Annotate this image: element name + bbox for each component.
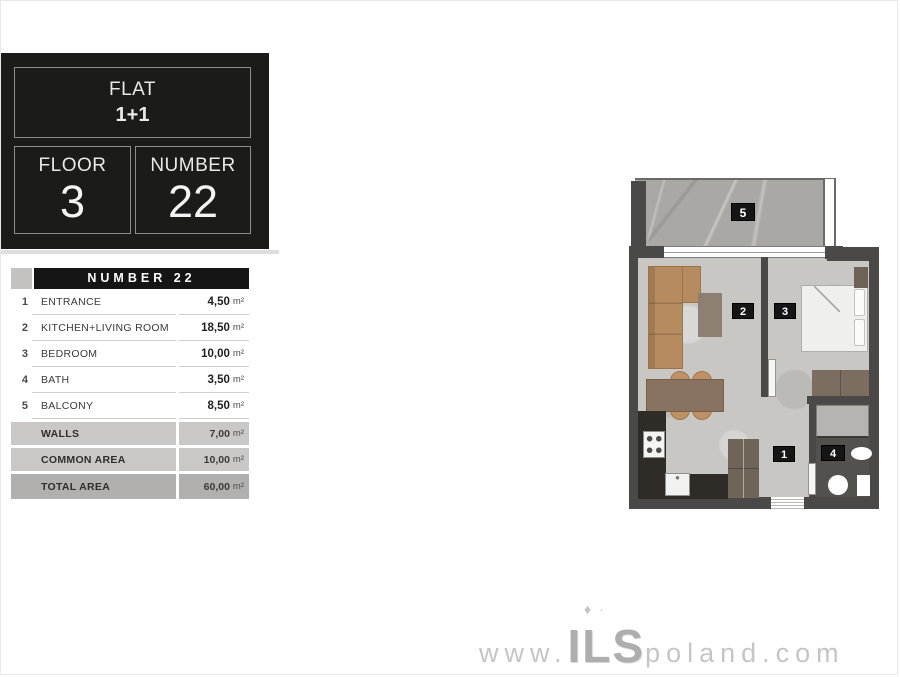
summary-row-common-area: COMMON AREA 10,00m² bbox=[11, 448, 249, 471]
row-value: 8,50m² bbox=[179, 393, 249, 419]
wall-bedroom-bottom bbox=[807, 396, 869, 404]
floorplan-sheet: FLAT 1+1 FLOOR 3 NUMBER 22 NUMBER 22 1 E… bbox=[0, 0, 898, 675]
row-label: BATH bbox=[32, 367, 176, 393]
wall-bedroom-top bbox=[827, 247, 879, 261]
bed-blanket-fold bbox=[814, 286, 840, 312]
row-number: 2 bbox=[11, 315, 32, 341]
watermark-prefix: www. bbox=[479, 638, 568, 669]
wall-left bbox=[629, 246, 638, 507]
pillow bbox=[854, 289, 865, 316]
row-value: 18,50m² bbox=[179, 315, 249, 341]
floor-label: FLOOR bbox=[39, 154, 107, 178]
number-box: NUMBER 22 bbox=[135, 146, 251, 234]
balcony-sliding-door bbox=[638, 246, 836, 258]
pillow bbox=[854, 319, 865, 346]
row-value-number: 10,00 bbox=[201, 348, 230, 360]
row-label: KITCHEN+LIVING ROOM bbox=[32, 315, 176, 341]
bedroom-door bbox=[768, 359, 776, 397]
flat-type-value: 1+1 bbox=[116, 102, 150, 128]
summary-unit: m² bbox=[233, 428, 244, 439]
total-label: TOTAL AREA bbox=[11, 474, 176, 499]
table-row: 1 ENTRANCE 4,50m² bbox=[11, 289, 249, 315]
row-unit: m² bbox=[233, 296, 244, 307]
room-tag-bedroom: 3 bbox=[774, 303, 796, 319]
row-value-number: 8,50 bbox=[208, 400, 230, 412]
row-unit: m² bbox=[233, 322, 244, 333]
table-row: 2 KITCHEN+LIVING ROOM 18,50m² bbox=[11, 315, 249, 341]
row-number: 3 bbox=[11, 341, 32, 367]
entrance-wardrobe bbox=[728, 439, 759, 498]
summary-value: 10,00m² bbox=[179, 448, 249, 471]
number-value: 22 bbox=[168, 178, 218, 226]
kitchen-sink bbox=[665, 473, 690, 496]
balcony-wall-post bbox=[631, 181, 646, 246]
row-label: ENTRANCE bbox=[32, 289, 176, 315]
wall-right bbox=[869, 247, 879, 497]
room-tag-entrance: 1 bbox=[773, 446, 795, 462]
wall-segment bbox=[638, 246, 664, 258]
room-tag-bath: 4 bbox=[821, 445, 845, 461]
row-value-number: 3,50 bbox=[208, 374, 230, 386]
row-number: 1 bbox=[11, 289, 32, 315]
nightstand bbox=[854, 267, 868, 288]
flat-info-panel: FLAT 1+1 FLOOR 3 NUMBER 22 bbox=[1, 53, 269, 249]
row-value-number: 4,50 bbox=[208, 296, 230, 308]
watermark-decor: ♦· bbox=[584, 601, 612, 617]
floor-plan: 1 2 3 4 5 bbox=[629, 169, 879, 509]
row-value: 10,00m² bbox=[179, 341, 249, 367]
table-row: 5 BALCONY 8,50m² bbox=[11, 393, 249, 419]
row-unit: m² bbox=[233, 348, 244, 359]
dining-table bbox=[646, 379, 724, 412]
summary-unit: m² bbox=[233, 454, 244, 465]
row-value-number: 18,50 bbox=[201, 322, 230, 334]
row-label: BEDROOM bbox=[32, 341, 176, 367]
toilet bbox=[851, 447, 872, 460]
table-row: 3 BEDROOM 10,00m² bbox=[11, 341, 249, 367]
area-table: NUMBER 22 1 ENTRANCE 4,50m² 2 KITCHEN+LI… bbox=[11, 268, 249, 499]
total-value: 60,00m² bbox=[179, 474, 249, 499]
stove bbox=[643, 431, 665, 458]
bathroom-door bbox=[808, 463, 816, 495]
bedroom-dresser bbox=[812, 370, 869, 396]
watermark-brand: ILS bbox=[568, 619, 646, 673]
total-unit: m² bbox=[233, 481, 244, 492]
room-tag-balcony: 5 bbox=[731, 203, 755, 221]
flat-label: FLAT bbox=[109, 78, 156, 102]
summary-row-walls: WALLS 7,00m² bbox=[11, 422, 249, 445]
watermark-suffix: poland.com bbox=[645, 638, 845, 669]
row-number: 5 bbox=[11, 393, 32, 419]
coffee-table bbox=[698, 293, 722, 337]
table-title: NUMBER 22 bbox=[34, 268, 249, 289]
table-corner-cell bbox=[11, 268, 32, 289]
summary-label: COMMON AREA bbox=[11, 448, 176, 471]
bathroom-cabinet bbox=[857, 475, 870, 496]
shower bbox=[816, 405, 869, 438]
panel-shadow-line bbox=[1, 250, 279, 254]
sofa bbox=[648, 266, 683, 369]
watermark: www.ILSpoland.com bbox=[479, 619, 897, 673]
number-label: NUMBER bbox=[150, 154, 235, 178]
table-row: 4 BATH 3,50m² bbox=[11, 367, 249, 393]
row-number: 4 bbox=[11, 367, 32, 393]
row-value: 3,50m² bbox=[179, 367, 249, 393]
summary-value: 7,00m² bbox=[179, 422, 249, 445]
flat-type-box: FLAT 1+1 bbox=[14, 67, 251, 138]
total-area-row: TOTAL AREA 60,00m² bbox=[11, 474, 249, 499]
row-value: 4,50m² bbox=[179, 289, 249, 315]
row-unit: m² bbox=[233, 400, 244, 411]
row-unit: m² bbox=[233, 374, 244, 385]
summary-value-number: 7,00 bbox=[209, 428, 229, 440]
room-tag-living: 2 bbox=[732, 303, 754, 319]
row-label: BALCONY bbox=[32, 393, 176, 419]
floor-value: 3 bbox=[60, 178, 85, 226]
bathroom-sink bbox=[828, 475, 848, 495]
wall-partition bbox=[761, 257, 768, 397]
area-table-header: NUMBER 22 bbox=[11, 268, 249, 289]
entrance-door bbox=[771, 497, 804, 509]
floor-box: FLOOR 3 bbox=[14, 146, 131, 234]
total-value-number: 60,00 bbox=[204, 481, 230, 493]
summary-value-number: 10,00 bbox=[204, 454, 230, 466]
summary-label: WALLS bbox=[11, 422, 176, 445]
